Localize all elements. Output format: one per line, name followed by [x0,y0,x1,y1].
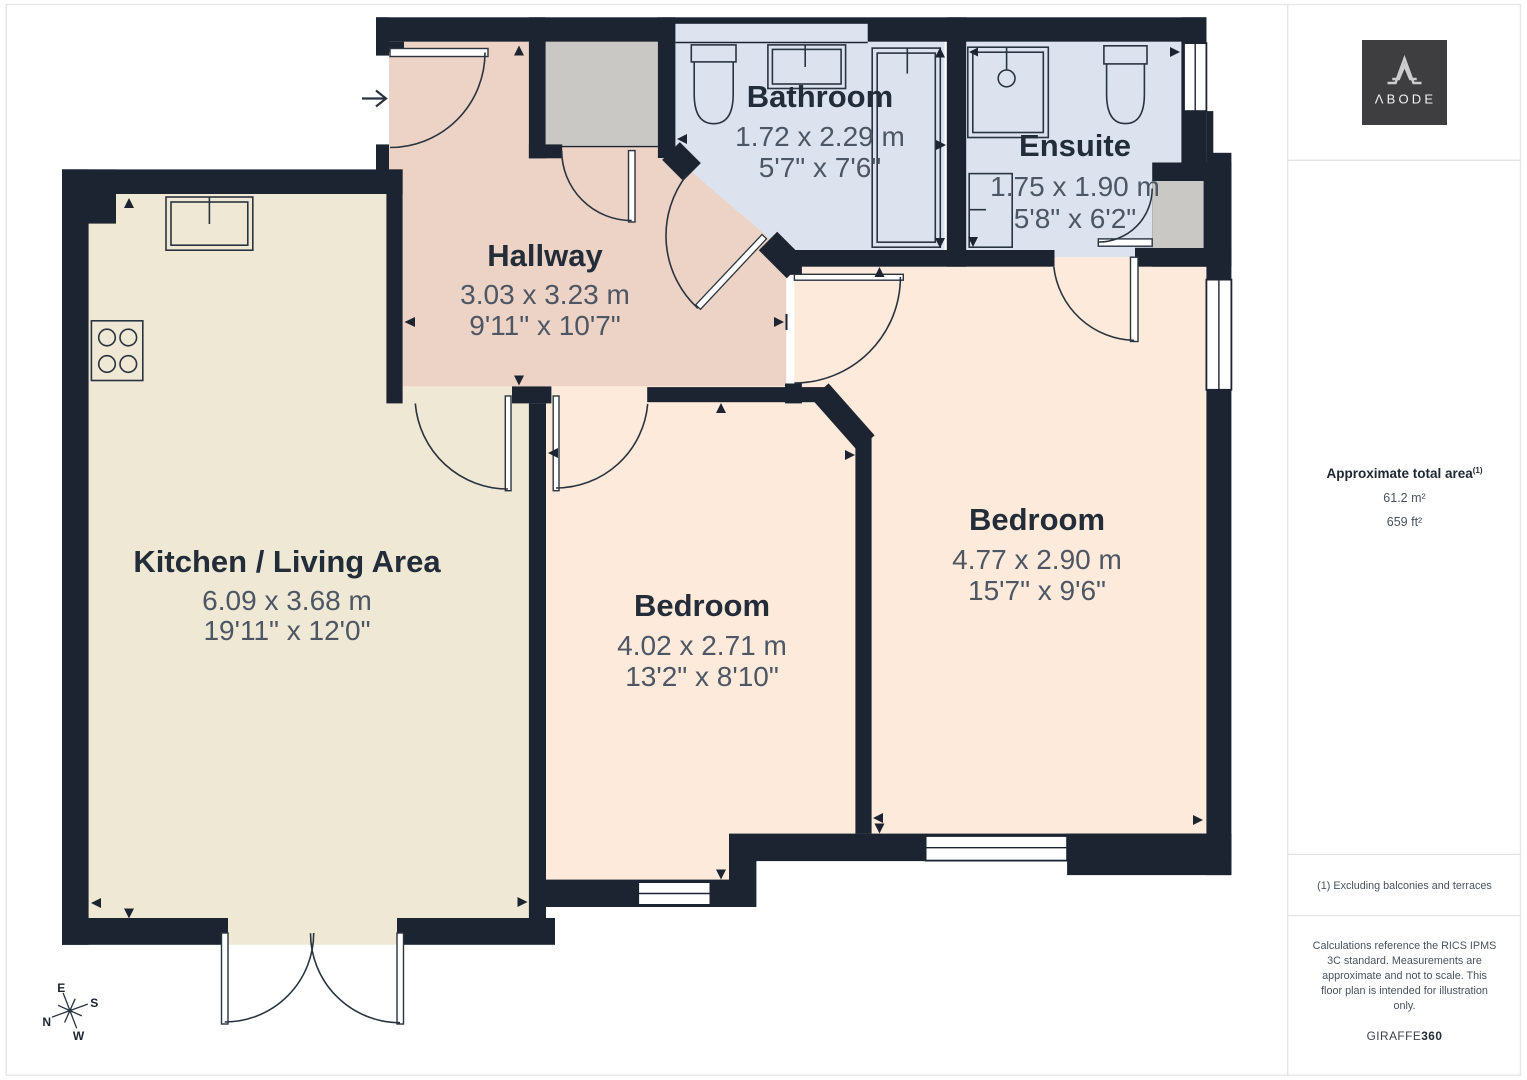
svg-text:61.2 m²: 61.2 m² [1383,491,1425,505]
svg-text:4.02 x 2.71 m: 4.02 x 2.71 m [617,630,787,661]
svg-text:E: E [57,981,65,995]
svg-text:6.09 x 3.68 m: 6.09 x 3.68 m [202,585,372,616]
svg-text:approximate and not to scale.: approximate and not to scale. This [1322,970,1487,982]
svg-text:Calculations reference the RIC: Calculations reference the RICS IPMS [1313,940,1497,952]
svg-text:Approximate total area(1): Approximate total area(1) [1326,466,1482,481]
svg-text:N: N [42,1015,51,1029]
svg-text:S: S [90,996,98,1010]
svg-text:3.03 x 3.23 m: 3.03 x 3.23 m [460,279,630,310]
svg-text:15'7" x 9'6": 15'7" x 9'6" [968,575,1106,606]
svg-text:4.77 x 2.90 m: 4.77 x 2.90 m [952,544,1122,575]
svg-text:9'11" x 10'7": 9'11" x 10'7" [469,310,620,341]
svg-text:floor plan is intended for ill: floor plan is intended for illustration [1321,985,1488,997]
svg-text:Kitchen / Living Area: Kitchen / Living Area [133,544,441,579]
svg-text:W: W [73,1029,85,1043]
svg-text:19'11" x 12'0": 19'11" x 12'0" [203,615,370,646]
svg-text:1.72 x 2.29 m: 1.72 x 2.29 m [735,121,905,152]
svg-text:5'8" x 6'2": 5'8" x 6'2" [1014,203,1136,234]
svg-text:Bedroom: Bedroom [634,588,770,623]
svg-text:Bedroom: Bedroom [969,502,1105,537]
svg-text:5'7" x 7'6": 5'7" x 7'6" [759,152,881,183]
svg-text:only.: only. [1393,1000,1415,1012]
svg-text:Bathroom: Bathroom [747,79,893,114]
svg-text:13'2" x 8'10": 13'2" x 8'10" [625,661,779,692]
svg-text:Hallway: Hallway [487,238,603,273]
svg-text:Ensuite: Ensuite [1019,128,1131,163]
svg-text:3C standard. Measurements are: 3C standard. Measurements are [1327,955,1482,967]
svg-text:ΛBODE: ΛBODE [1375,92,1437,107]
svg-text:GIRAFFE360: GIRAFFE360 [1367,1029,1443,1043]
svg-text:(1) Excluding balconies and te: (1) Excluding balconies and terraces [1317,880,1492,892]
svg-text:659 ft²: 659 ft² [1387,515,1422,529]
svg-text:1.75 x 1.90 m: 1.75 x 1.90 m [990,171,1160,202]
